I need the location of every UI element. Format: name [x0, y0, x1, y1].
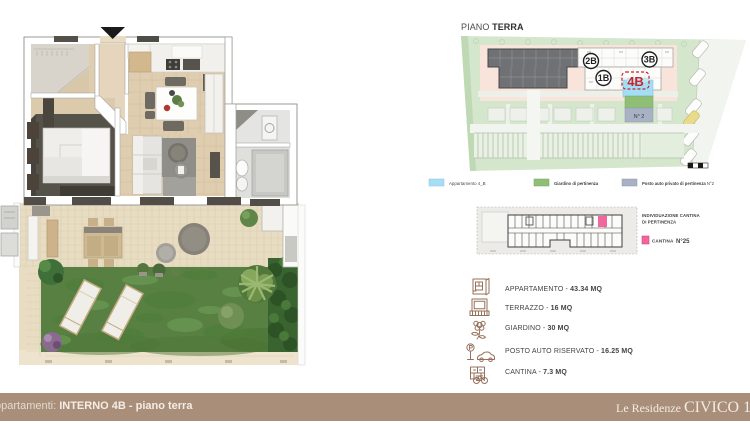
svg-text:CANTINA - 7.3 MQ: CANTINA - 7.3 MQ	[505, 369, 567, 376]
svg-text:Giardino di pertinenza: Giardino di pertinenza	[554, 181, 599, 186]
svg-text:POSTO AUTO RISERVATO - 16.25 M: POSTO AUTO RISERVATO - 16.25 MQ	[505, 348, 633, 355]
svg-text:DI PERTINENZA: DI PERTINENZA	[642, 220, 676, 225]
svg-text:GIARDINO - 30 MQ: GIARDINO - 30 MQ	[505, 325, 570, 332]
svg-text:TERRAZZO - 16 MQ: TERRAZZO - 16 MQ	[505, 305, 573, 312]
svg-text:2B: 2B	[585, 56, 597, 66]
svg-text:N°25: N°25	[676, 239, 690, 245]
svg-text:CANTINA: CANTINA	[652, 239, 674, 244]
svg-text:Posto auto privato di pertinen: Posto auto privato di pertinenza N°2	[642, 181, 715, 186]
svg-text:APPARTAMENTO - 43.34 MQ: APPARTAMENTO - 43.34 MQ	[505, 286, 602, 293]
svg-text:Appartamento 4_B: Appartamento 4_B	[449, 181, 486, 186]
svg-text:INDIVIDUAZIONE CANTINA: INDIVIDUAZIONE CANTINA	[642, 213, 700, 218]
svg-text:1B: 1B	[598, 73, 610, 83]
svg-text:4B: 4B	[627, 74, 644, 89]
svg-text:N° 2: N° 2	[634, 114, 645, 120]
svg-text:3B: 3B	[644, 55, 656, 65]
